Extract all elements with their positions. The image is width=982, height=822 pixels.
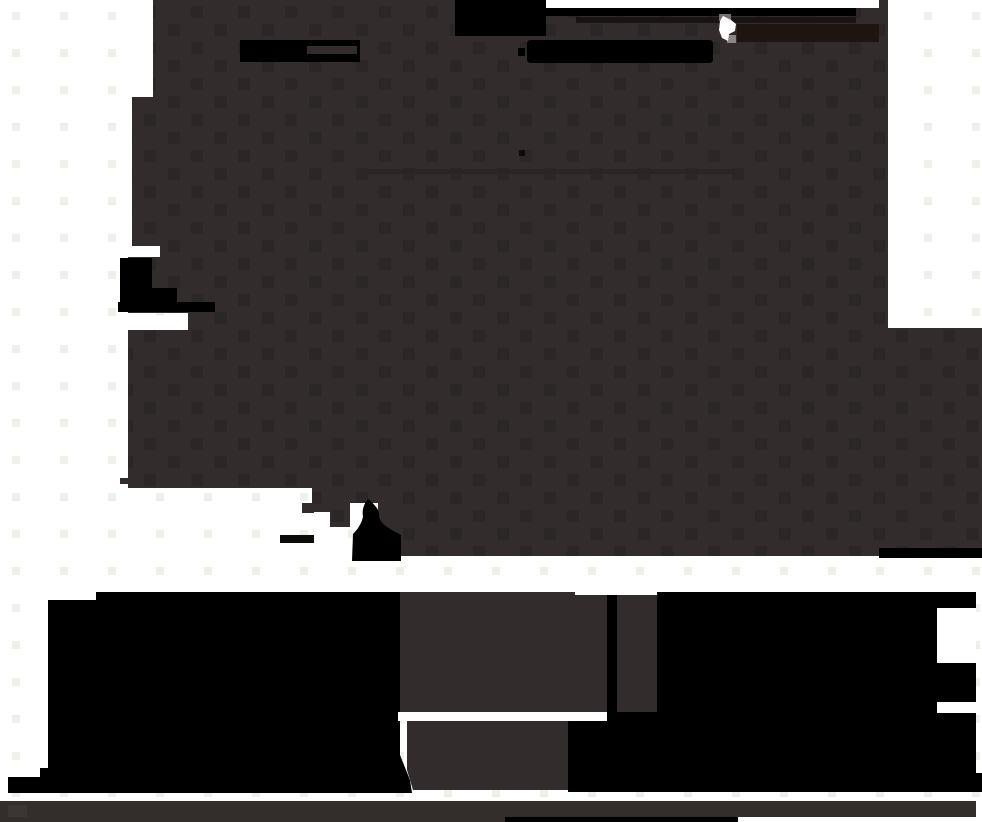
highlight-red-bar: [737, 24, 879, 42]
tiny-mark: [519, 150, 525, 156]
hedge-white-band: [398, 712, 607, 721]
hedge-black-strip: [607, 595, 617, 712]
screenshot-root: [0, 0, 982, 822]
bottom-black-strip: [505, 817, 738, 822]
hedge-gray-lower: [407, 721, 568, 790]
top-black-bar: [496, 8, 856, 16]
foliage-texture: [120, 0, 982, 556]
bottom-bar: [0, 801, 976, 817]
horizontal-seam-line: [367, 169, 734, 174]
foliage-step-dash: [302, 503, 314, 513]
foliage-bottom-black-band: [879, 548, 982, 558]
black-pill: [527, 40, 713, 63]
left-edge-blob-upper: [120, 258, 152, 288]
left-edge-blob-middle: [120, 288, 177, 302]
top-thin-bar: [576, 17, 856, 23]
floating-dash: [280, 535, 314, 543]
hedge-gray-upper: [400, 592, 657, 712]
hedge-white-hole-upper: [937, 608, 976, 663]
pill-left-dash: [518, 48, 525, 56]
hedge-white-hole-lower: [937, 702, 982, 713]
hedge-black-left: [8, 592, 412, 793]
left-rect-notch: [307, 46, 357, 54]
bottom-bar-left-extension: [0, 815, 505, 822]
bottom-bar-light-square: [8, 805, 27, 817]
left-edge-blob-lower: [118, 302, 215, 312]
top-black-patch: [455, 0, 546, 36]
dark-scene-canvas: [0, 0, 982, 822]
